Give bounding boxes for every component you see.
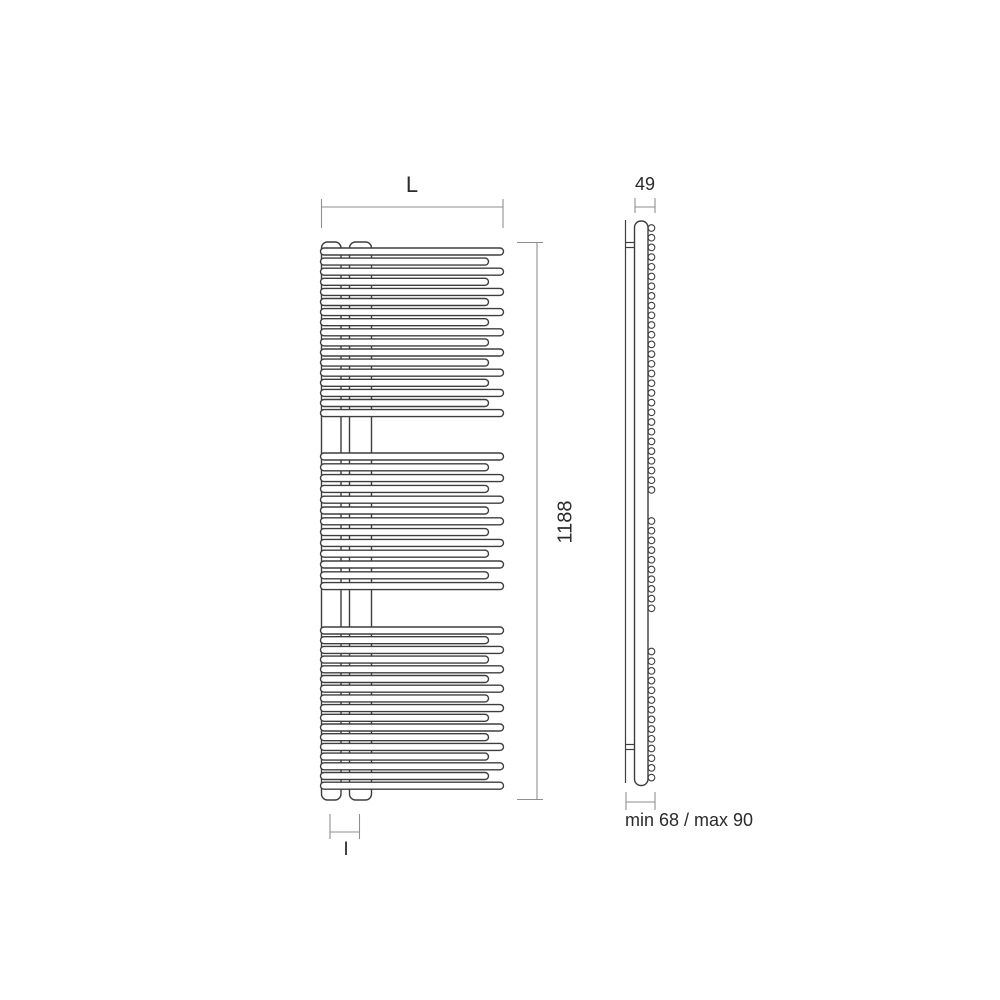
heating-tube xyxy=(321,349,504,356)
wall-bracket xyxy=(626,243,636,248)
dim-depth xyxy=(635,198,655,213)
heating-tube xyxy=(321,724,504,731)
tube-end-circle xyxy=(648,264,655,271)
tube-end-circle xyxy=(648,380,655,387)
tube-end-circle xyxy=(648,648,655,655)
heating-tube xyxy=(321,646,504,653)
tube-end-circle xyxy=(648,341,655,348)
tube-end-circle xyxy=(648,677,655,684)
heating-tube xyxy=(321,753,489,760)
tube-end-circle xyxy=(648,566,655,573)
tube-end-circle xyxy=(648,293,655,300)
dim-wall-distance xyxy=(626,792,655,810)
tube-end-circle xyxy=(648,399,655,406)
tube-end-circle xyxy=(648,537,655,544)
tube-end-circle xyxy=(648,726,655,733)
heating-tube xyxy=(321,475,504,482)
tube-end-circle xyxy=(648,755,655,762)
heating-tube xyxy=(321,485,489,492)
tube-end-group xyxy=(648,225,655,494)
tube-end-circle xyxy=(648,370,655,377)
tube-end-circle xyxy=(648,409,655,416)
heating-tube xyxy=(321,248,504,255)
tube-end-circle xyxy=(648,557,655,564)
tube-end-circle xyxy=(648,312,655,319)
heating-tube xyxy=(321,319,489,326)
drawing-svg xyxy=(0,0,1000,1000)
tube-end-circle xyxy=(648,745,655,752)
heating-tube xyxy=(321,529,489,536)
tube-end-circle xyxy=(648,576,655,583)
tube-end-circle xyxy=(648,467,655,474)
tube-end-circle xyxy=(648,244,655,251)
heating-tube xyxy=(321,550,489,557)
heating-tube xyxy=(321,572,489,579)
tube-end-circle xyxy=(648,687,655,694)
collector-profile xyxy=(635,221,649,786)
dim-collector-spacing-label: I xyxy=(343,839,348,861)
heating-tube xyxy=(321,309,504,316)
heating-tube xyxy=(321,359,489,366)
dim-height-label: 1188 xyxy=(555,500,578,543)
heating-tube xyxy=(321,369,504,376)
tube-end-group xyxy=(648,648,655,781)
tube-end-circle xyxy=(648,518,655,525)
heating-tube xyxy=(321,299,489,306)
dim-width-label: L xyxy=(406,172,418,198)
tube-end-group xyxy=(648,518,655,612)
heating-tube xyxy=(321,288,504,295)
dim-wall-distance-label: min 68 / max 90 xyxy=(625,810,753,831)
heating-tube xyxy=(321,496,504,503)
heating-tube xyxy=(321,507,489,514)
tube-end-circle xyxy=(648,605,655,612)
tube-end-circle xyxy=(648,234,655,241)
tube-end-circle xyxy=(648,765,655,772)
tube-end-circle xyxy=(648,225,655,232)
heating-tube xyxy=(321,329,504,336)
tube-end-circle xyxy=(648,302,655,309)
tube-end-circle xyxy=(648,668,655,675)
tube-end-circle xyxy=(648,458,655,465)
heating-tube xyxy=(321,763,504,770)
heating-tube xyxy=(321,453,504,460)
wall-bracket xyxy=(626,745,636,750)
tube-end-circle xyxy=(648,736,655,743)
heating-tube xyxy=(321,656,489,663)
heating-tube xyxy=(321,258,489,265)
heating-tube xyxy=(321,561,504,568)
tube-end-circle xyxy=(648,390,655,397)
tube-end-circle xyxy=(648,273,655,280)
tube-end-circle xyxy=(648,706,655,713)
tube-end-circle xyxy=(648,322,655,329)
tube-end-circle xyxy=(648,527,655,534)
tube-end-circle xyxy=(648,438,655,445)
tube-end-circle xyxy=(648,716,655,723)
tube-end-circle xyxy=(648,361,655,368)
tube-end-circle xyxy=(648,487,655,494)
heating-tube xyxy=(321,695,489,702)
heating-tube xyxy=(321,400,489,407)
heating-tube xyxy=(321,714,489,721)
heating-tube xyxy=(321,773,489,780)
heating-tube xyxy=(321,583,504,590)
dim-height xyxy=(517,243,543,800)
tube-end-circle xyxy=(648,774,655,781)
heating-tube xyxy=(321,734,489,741)
dim-depth-label: 49 xyxy=(635,174,655,195)
tube-end-circle xyxy=(648,586,655,593)
front-view xyxy=(321,242,504,800)
radiator-technical-diagram: L 49 1188 I min 68 / max 90 xyxy=(0,0,1000,1000)
heating-tube xyxy=(321,339,489,346)
heating-tube xyxy=(321,782,504,789)
tube-end-circle xyxy=(648,595,655,602)
tube-group xyxy=(321,453,504,590)
heating-tube xyxy=(321,539,504,546)
dim-width xyxy=(322,199,504,228)
heating-tube xyxy=(321,685,504,692)
heating-tube xyxy=(321,705,504,712)
tube-group xyxy=(321,248,504,417)
heating-tube xyxy=(321,278,489,285)
tube-end-circle xyxy=(648,254,655,261)
heating-tube xyxy=(321,637,489,644)
tube-end-circle xyxy=(648,283,655,290)
heating-tube xyxy=(321,379,489,386)
tube-end-circle xyxy=(648,697,655,704)
tube-end-circle xyxy=(648,428,655,435)
side-view xyxy=(626,220,655,786)
tube-end-circle xyxy=(648,547,655,554)
heating-tube xyxy=(321,666,504,673)
heating-tube xyxy=(321,743,504,750)
tube-end-circle xyxy=(648,658,655,665)
heating-tube xyxy=(321,389,504,396)
tube-end-circle xyxy=(648,351,655,358)
tube-end-circle xyxy=(648,477,655,484)
tube-group xyxy=(321,627,504,789)
heating-tube xyxy=(321,410,504,417)
dim-collector-spacing xyxy=(330,814,360,839)
tube-end-circle xyxy=(648,331,655,338)
tube-end-circle xyxy=(648,448,655,455)
heating-tube xyxy=(321,627,504,634)
tube-end-circle xyxy=(648,419,655,426)
heating-tube xyxy=(321,268,504,275)
heating-tube xyxy=(321,518,504,525)
heating-tube xyxy=(321,464,489,471)
heating-tube xyxy=(321,676,489,683)
